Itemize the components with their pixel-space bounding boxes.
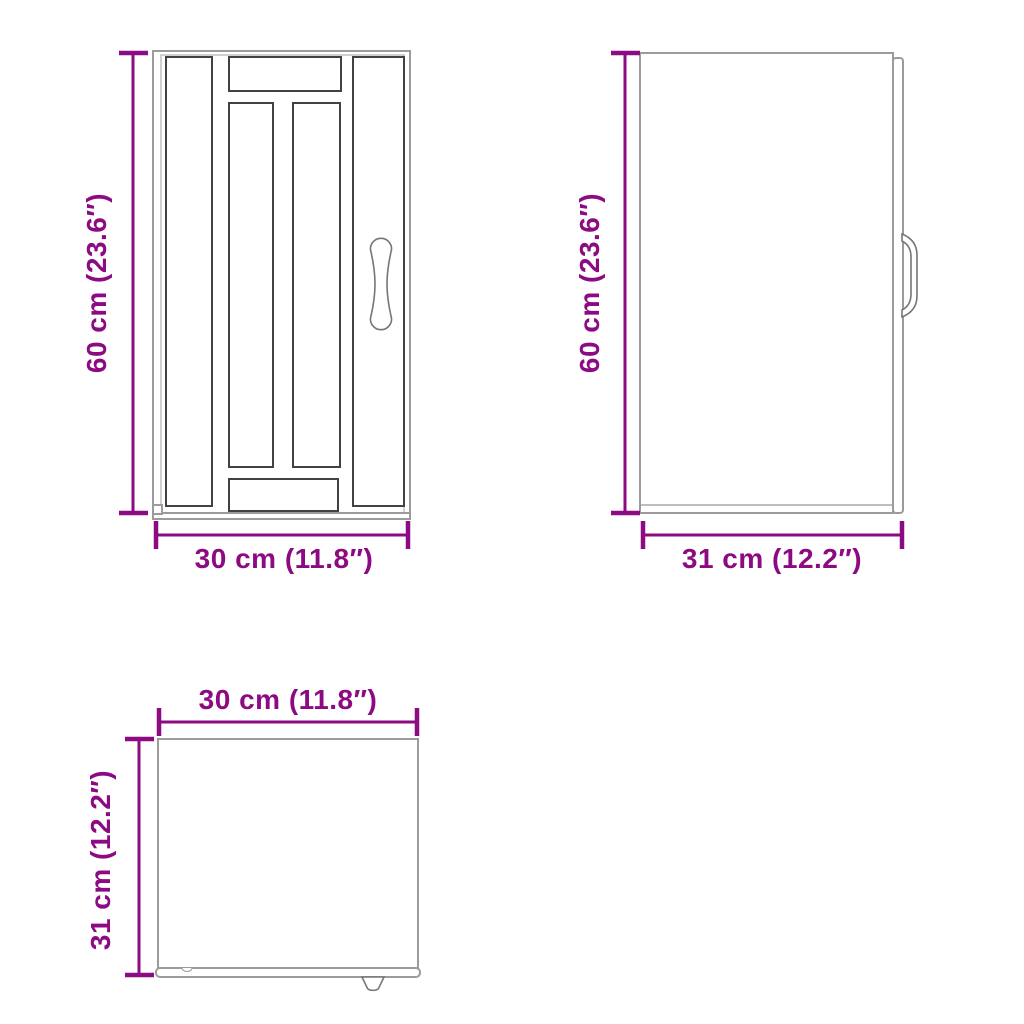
diagram-svg: 60 cm (23.6″) 30 cm (11.8″) 60 cm (23.6″… bbox=[0, 0, 1024, 1024]
side-cabinet-outline bbox=[640, 53, 893, 513]
front-center-left-panel bbox=[229, 103, 273, 467]
front-center-right-panel bbox=[293, 103, 340, 467]
front-height-dimension: 60 cm (23.6″) bbox=[81, 53, 148, 513]
side-height-label: 60 cm (23.6″) bbox=[574, 193, 605, 373]
top-width-label: 30 cm (11.8″) bbox=[199, 684, 378, 715]
front-bottom-rail-panel bbox=[229, 479, 338, 511]
door-handle-side bbox=[902, 234, 917, 317]
side-door-edge-strip bbox=[893, 58, 903, 513]
side-depth-label: 31 cm (12.2″) bbox=[682, 543, 862, 574]
front-width-dimension: 30 cm (11.8″) bbox=[156, 521, 408, 574]
side-depth-dimension: 31 cm (12.2″) bbox=[643, 521, 902, 574]
top-cabinet-outline bbox=[158, 739, 418, 968]
door-handle-top bbox=[362, 977, 384, 990]
front-corner-notch bbox=[153, 505, 162, 514]
front-width-label: 30 cm (11.8″) bbox=[195, 543, 374, 574]
cabinet-side-view bbox=[640, 53, 917, 513]
front-top-rail-panel bbox=[229, 57, 341, 91]
cabinet-top-view bbox=[156, 739, 420, 990]
side-height-dimension: 60 cm (23.6″) bbox=[574, 53, 640, 513]
top-hinge-notch bbox=[182, 968, 192, 972]
top-door-front-strip bbox=[156, 968, 420, 977]
product-dimension-diagram: 60 cm (23.6″) 30 cm (11.8″) 60 cm (23.6″… bbox=[0, 0, 1024, 1024]
top-depth-label: 31 cm (12.2″) bbox=[85, 770, 116, 950]
front-left-stile-panel bbox=[166, 57, 212, 506]
top-depth-dimension: 31 cm (12.2″) bbox=[85, 739, 154, 975]
front-height-label: 60 cm (23.6″) bbox=[81, 193, 112, 373]
cabinet-front-view bbox=[153, 51, 410, 519]
top-width-dimension: 30 cm (11.8″) bbox=[159, 684, 417, 736]
